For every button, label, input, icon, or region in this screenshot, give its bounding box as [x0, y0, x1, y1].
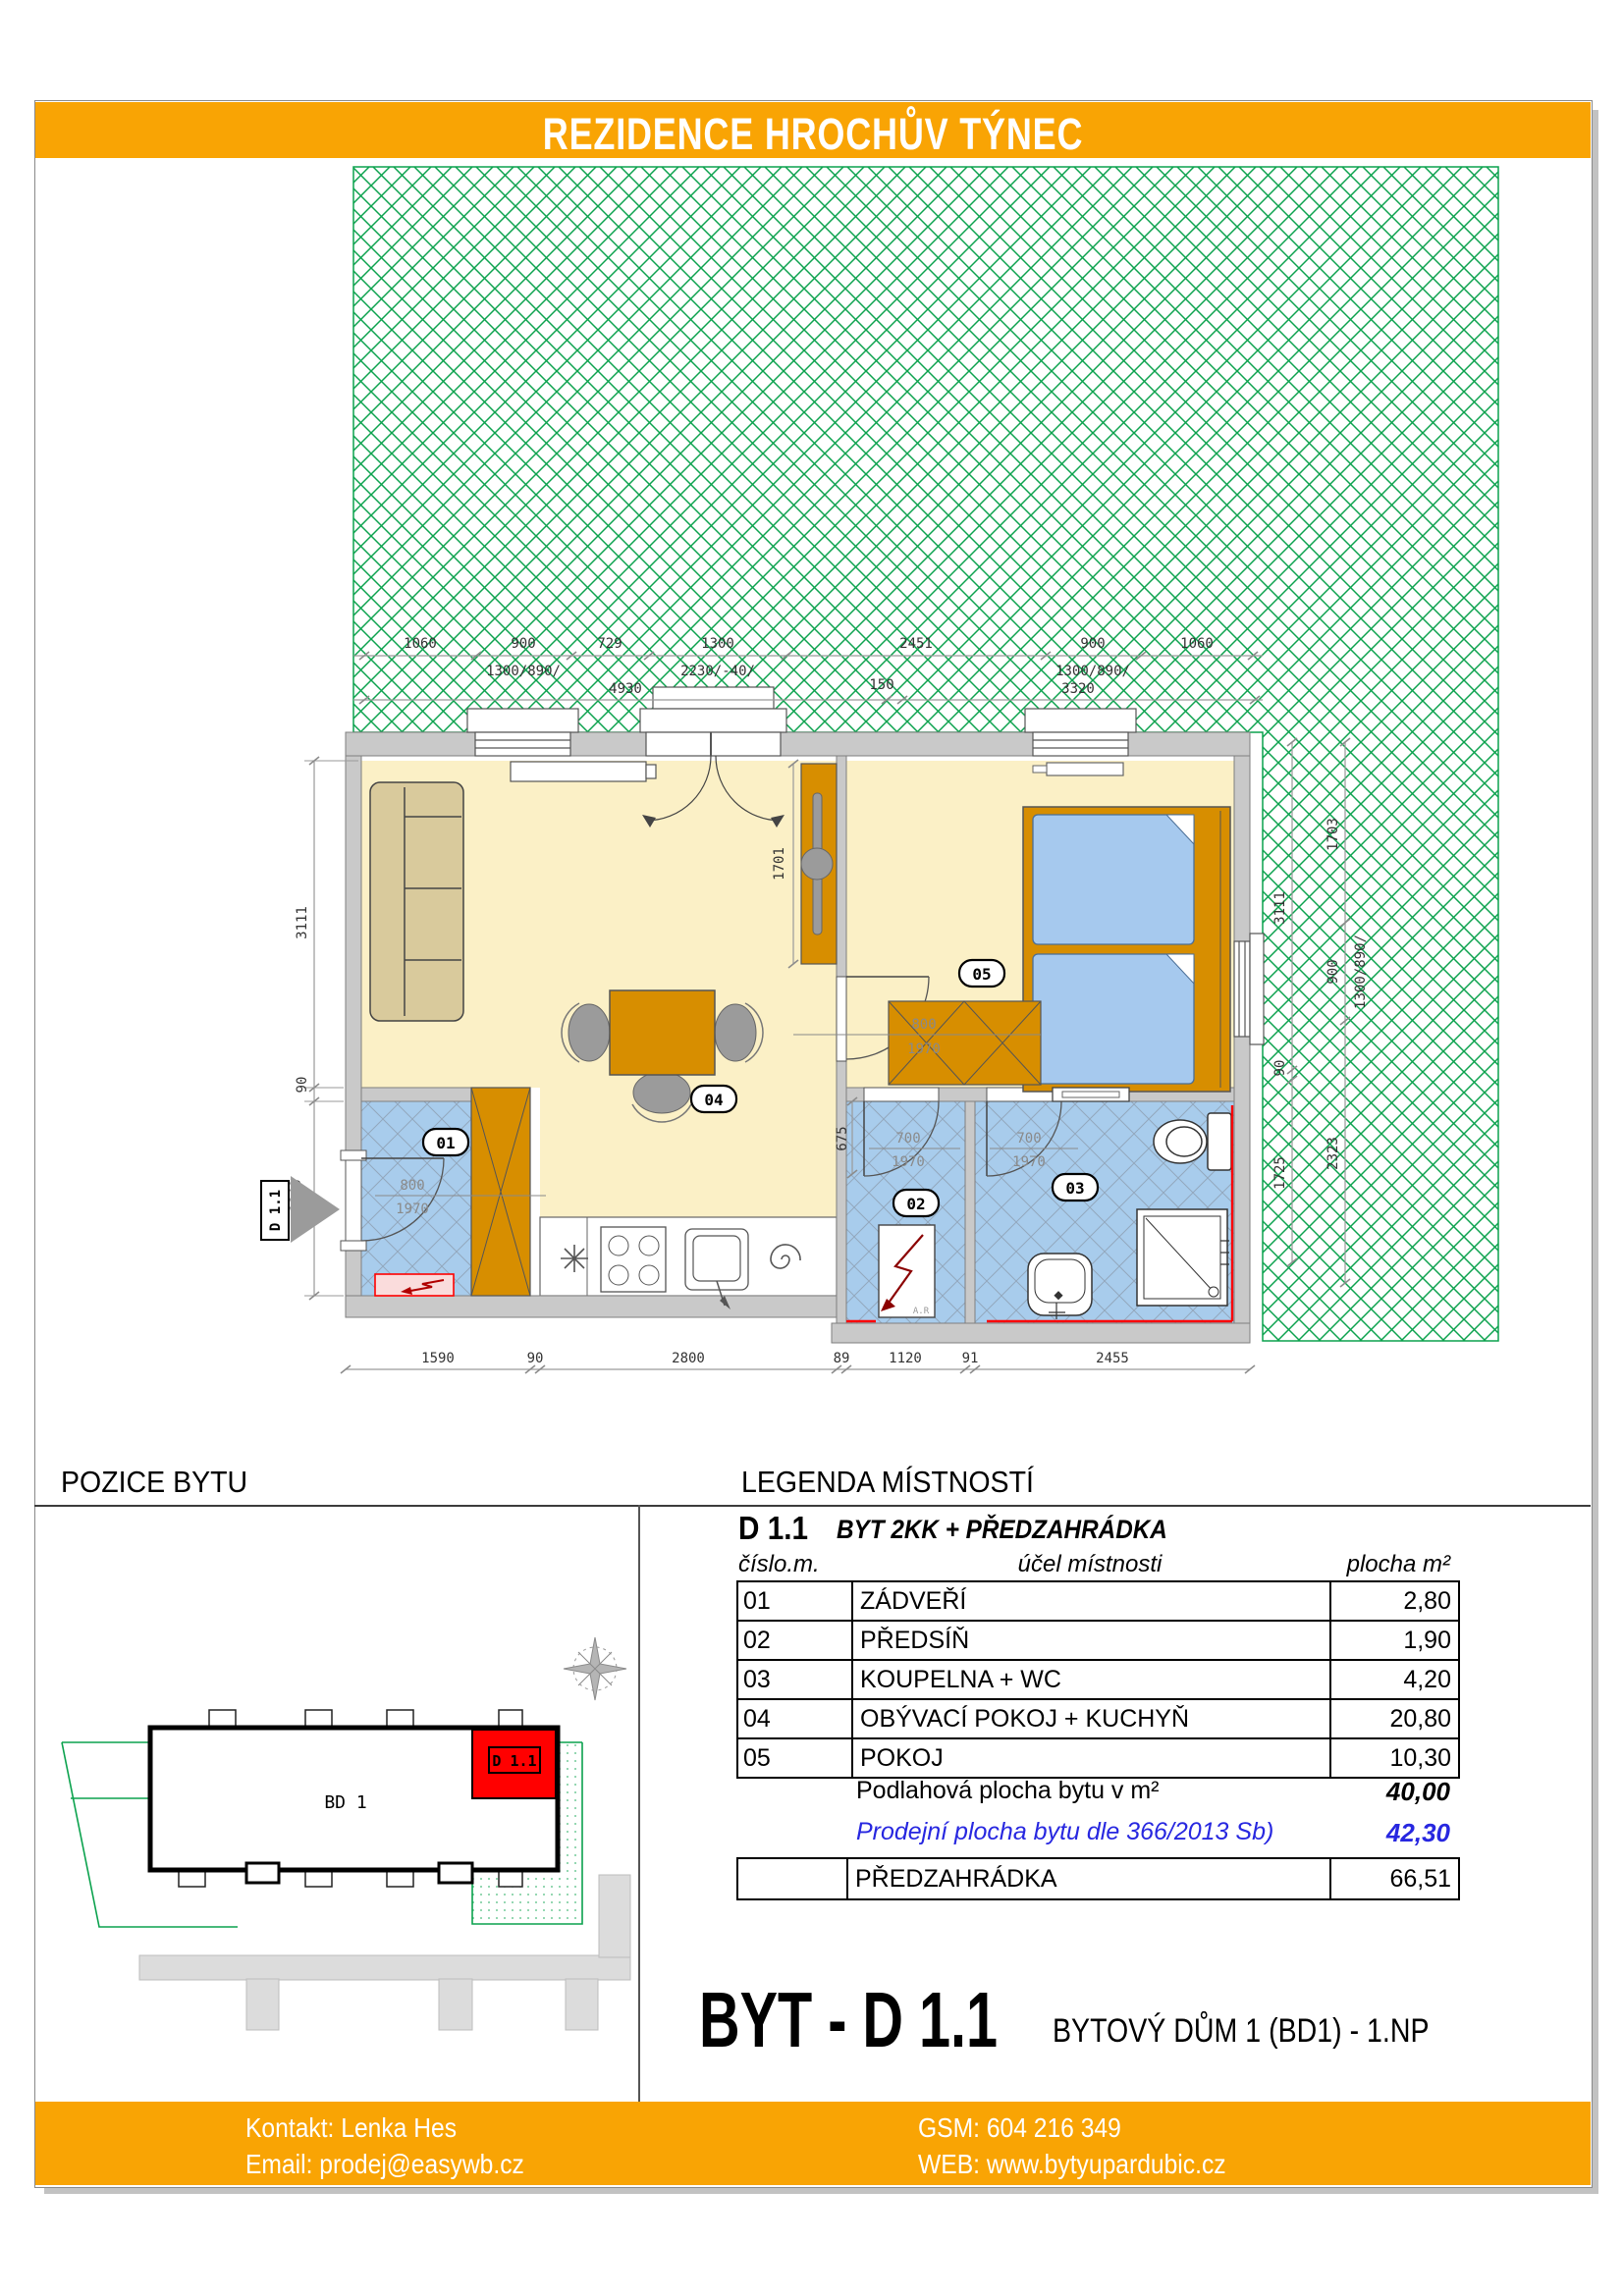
svg-text:729: 729 [597, 636, 622, 652]
svg-text:2230/-40/: 2230/-40/ [680, 664, 755, 679]
footer-email: Email: prodej@easywb.cz [245, 2146, 524, 2182]
svg-text:3320: 3320 [1061, 681, 1095, 697]
svg-text:675: 675 [835, 1126, 850, 1150]
footer-gsm: GSM: 604 216 349 [918, 2109, 1226, 2146]
svg-text:1060: 1060 [1180, 636, 1214, 652]
shower [1137, 1209, 1229, 1306]
garden-row-label: PŘEDZAHRÁDKA [848, 1859, 1329, 1898]
svg-text:4930: 4930 [609, 681, 642, 697]
svg-text:03: 03 [1065, 1179, 1084, 1198]
legend-table: 01 ZÁDVEŘÍ 2,80 02 PŘEDSÍŇ 1,90 03 KOUPE… [736, 1580, 1460, 1779]
svg-text:89: 89 [834, 1351, 850, 1366]
svg-text:05: 05 [972, 965, 991, 984]
page: REZIDENCE HROCHŮV TÝNEC [0, 0, 1623, 2296]
sale-area-value: 42,30 [1330, 1818, 1450, 1848]
svg-text:2451: 2451 [899, 636, 933, 652]
unit-entrance-marker: D 1.1 [261, 1176, 340, 1243]
svg-text:1590: 1590 [421, 1351, 455, 1366]
footer-contact: Kontakt: Lenka Hes [245, 2109, 524, 2146]
svg-text:02: 02 [906, 1195, 925, 1213]
svg-text:1725: 1725 [1272, 1156, 1288, 1190]
svg-text:1300/890/: 1300/890/ [1353, 934, 1369, 1009]
section-divider-vertical [638, 1505, 640, 2102]
svg-text:800: 800 [911, 1017, 936, 1033]
svg-text:01: 01 [436, 1134, 455, 1152]
bed [1023, 807, 1230, 1092]
svg-text:2800: 2800 [672, 1351, 705, 1366]
footer-contact-block: Kontakt: Lenka Hes Email: prodej@easywb.… [245, 2109, 563, 2182]
window-bedroom-top [1025, 709, 1136, 756]
footer-band: Kontakt: Lenka Hes Email: prodej@easywb.… [35, 2102, 1591, 2185]
floor-area-label: Podlahová plocha bytu v m² [856, 1777, 1160, 1805]
svg-text:1300: 1300 [701, 636, 734, 652]
svg-text:1970: 1970 [892, 1154, 925, 1170]
svg-text:2323: 2323 [1325, 1137, 1341, 1170]
svg-text:90: 90 [1272, 1060, 1288, 1077]
table-row: 03 KOUPELNA + WC 4,20 [738, 1661, 1458, 1700]
apartment-title: BYT - D 1.1 [699, 1975, 998, 2065]
entry-wardrobe [471, 1088, 530, 1296]
svg-text:1701: 1701 [772, 847, 787, 881]
shelf [511, 762, 656, 781]
svg-text:1300/890/: 1300/890/ [486, 664, 561, 679]
badge-03: 03 [1053, 1174, 1098, 1201]
svg-text:800: 800 [400, 1178, 424, 1194]
window-bedroom-right [1234, 934, 1264, 1044]
legenda-title: LEGENDA MÍSTNOSTÍ [741, 1465, 1034, 1500]
bedroom-radiator [1033, 763, 1123, 775]
badge-05: 05 [959, 960, 1004, 987]
svg-text:1970: 1970 [396, 1201, 429, 1217]
floor-area-value: 40,00 [1330, 1777, 1450, 1807]
svg-text:04: 04 [704, 1091, 723, 1109]
sink [1028, 1254, 1092, 1319]
svg-text:900: 900 [1080, 636, 1105, 652]
compass-icon [564, 1637, 626, 1700]
svg-text:3111: 3111 [1272, 891, 1288, 925]
svg-text:1703: 1703 [1325, 818, 1341, 851]
legend-subtitle: BYT 2KK + PŘEDZAHRÁDKA [837, 1515, 1167, 1545]
building-title: BYTOVÝ DŮM 1 (BD1) - 1.NP [1053, 2012, 1430, 2051]
heater-label: A.R [913, 1307, 930, 1316]
svg-text:90: 90 [295, 1077, 310, 1094]
svg-text:1300/890/: 1300/890/ [1055, 664, 1130, 679]
col-header-area: plocha m² [1330, 1551, 1450, 1578]
svg-text:1970: 1970 [907, 1041, 941, 1057]
svg-text:700: 700 [1016, 1131, 1041, 1147]
badge-02: 02 [893, 1190, 939, 1216]
svg-text:1120: 1120 [889, 1351, 922, 1366]
table-row: 01 ZÁDVEŘÍ 2,80 [738, 1582, 1458, 1622]
pozice-title: POZICE BYTU [61, 1465, 247, 1500]
svg-text:150: 150 [869, 677, 893, 693]
table-row: 05 POKOJ 10,30 [738, 1739, 1458, 1777]
building-label: BD 1 [324, 1792, 366, 1813]
legend-unit: D 1.1 [738, 1510, 808, 1547]
svg-text:D 1.1: D 1.1 [268, 1190, 284, 1231]
unit-label: D 1.1 [492, 1752, 536, 1770]
svg-text:1060: 1060 [404, 636, 437, 652]
svg-text:900: 900 [1325, 959, 1341, 984]
badge-04: 04 [691, 1086, 736, 1112]
table-row: 04 OBÝVACÍ POKOJ + KUCHYŇ 20,80 [738, 1700, 1458, 1739]
svg-text:900: 900 [511, 636, 535, 652]
svg-text:2455: 2455 [1096, 1351, 1129, 1366]
window-living [467, 709, 578, 756]
garden-row-value: 66,51 [1329, 1859, 1458, 1898]
svg-text:3111: 3111 [295, 906, 310, 939]
footer-web: WEB: www.bytyupardubic.cz [918, 2146, 1226, 2182]
footer-phone-block: GSM: 604 216 349 WEB: www.bytyupardubic.… [918, 2109, 1268, 2182]
tv-stand [801, 764, 837, 964]
garden-row: PŘEDZAHRÁDKA 66,51 [736, 1857, 1460, 1900]
building-bd1: D 1.1 BD 1 [150, 1710, 558, 1887]
badge-01: 01 [423, 1129, 468, 1155]
sale-area-label: Prodejní plocha bytu dle 366/2013 Sb) [856, 1818, 1273, 1846]
entry-heater [375, 1274, 454, 1296]
col-header-name: účel místnosti [849, 1551, 1330, 1578]
hall-water-heater: A.R [879, 1225, 935, 1317]
svg-text:90: 90 [527, 1351, 544, 1366]
floor-plan: A.R [0, 0, 1623, 1433]
svg-text:91: 91 [962, 1351, 979, 1366]
table-row: 02 PŘEDSÍŇ 1,90 [738, 1622, 1458, 1661]
towel-rail [1053, 1088, 1129, 1101]
svg-text:1970: 1970 [1012, 1154, 1046, 1170]
sofa [370, 782, 463, 1021]
position-diagram: D 1.1 BD 1 [35, 1507, 636, 2100]
svg-text:700: 700 [895, 1131, 920, 1147]
garden-row-number [738, 1859, 848, 1898]
col-header-number: číslo.m. [738, 1551, 820, 1578]
